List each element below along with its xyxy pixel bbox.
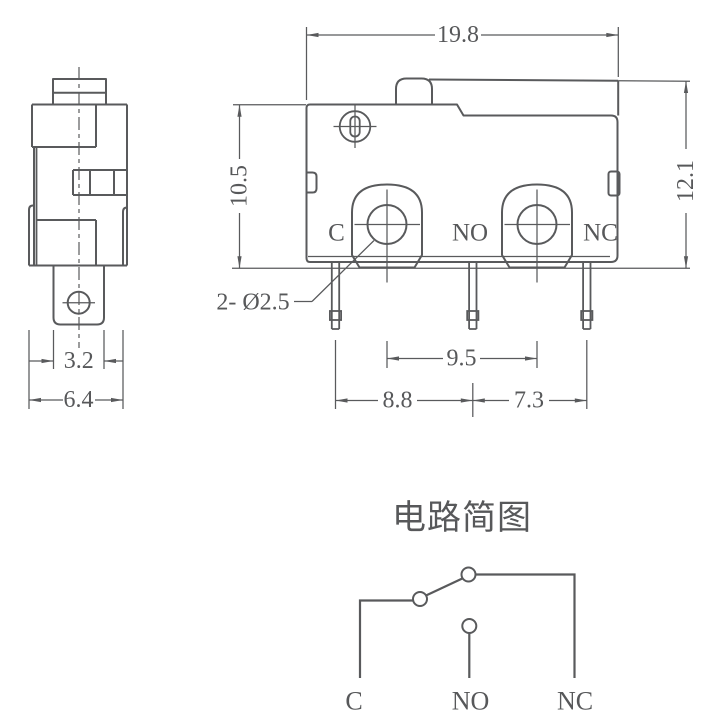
- circuit-contact-common: [413, 592, 427, 606]
- actuator-button: [396, 79, 432, 105]
- circuit-label-common: C: [345, 687, 362, 716]
- dim-pin-spacing-left: 8.8: [383, 388, 413, 414]
- circuit-title: 电路简图: [392, 499, 532, 537]
- dim-front-width: 19.8: [437, 22, 479, 48]
- drawing-sheet: 3.2 6.4 C NO NC: [0, 0, 720, 721]
- side-left-ear: [29, 206, 33, 266]
- circuit-switch-blade: [426, 579, 462, 596]
- microswitch-technical-drawing: 3.2 6.4 C NO NC: [0, 0, 720, 721]
- circuit-label-no: NO: [452, 687, 490, 716]
- circuit-contact-no: [462, 619, 476, 633]
- dim-hole-spacing: 9.5: [447, 346, 477, 372]
- circuit-contact-nc: [462, 568, 476, 582]
- front-view: C NO NC: [307, 79, 620, 330]
- dim-hole-callout: 2- Ø2.5: [216, 290, 289, 316]
- circuit-nc-wire: [476, 575, 575, 679]
- circuit-common-wire: [360, 601, 413, 679]
- dim-front-height-left: 10.5: [227, 165, 253, 207]
- dim-side-body-width: 6.4: [64, 387, 94, 413]
- terminal-label-common: C: [328, 220, 345, 247]
- side-view: [29, 67, 127, 348]
- dim-pin-spacing-right: 7.3: [514, 388, 544, 414]
- dim-side-terminal-width: 3.2: [64, 348, 94, 374]
- side-view-dimensions: 3.2 6.4: [29, 330, 123, 413]
- lever-arm: [429, 80, 618, 116]
- terminal-label-no: NO: [452, 220, 488, 247]
- solder-pins: [330, 262, 593, 329]
- circuit-label-nc: NC: [557, 687, 593, 716]
- circuit-diagram: 电路简图 C NO NC: [345, 499, 593, 716]
- dim-front-height-right: 12.1: [673, 160, 699, 202]
- side-latch-block: [73, 170, 127, 195]
- terminal-label-nc: NC: [583, 220, 618, 247]
- left-latch-window: [307, 173, 317, 193]
